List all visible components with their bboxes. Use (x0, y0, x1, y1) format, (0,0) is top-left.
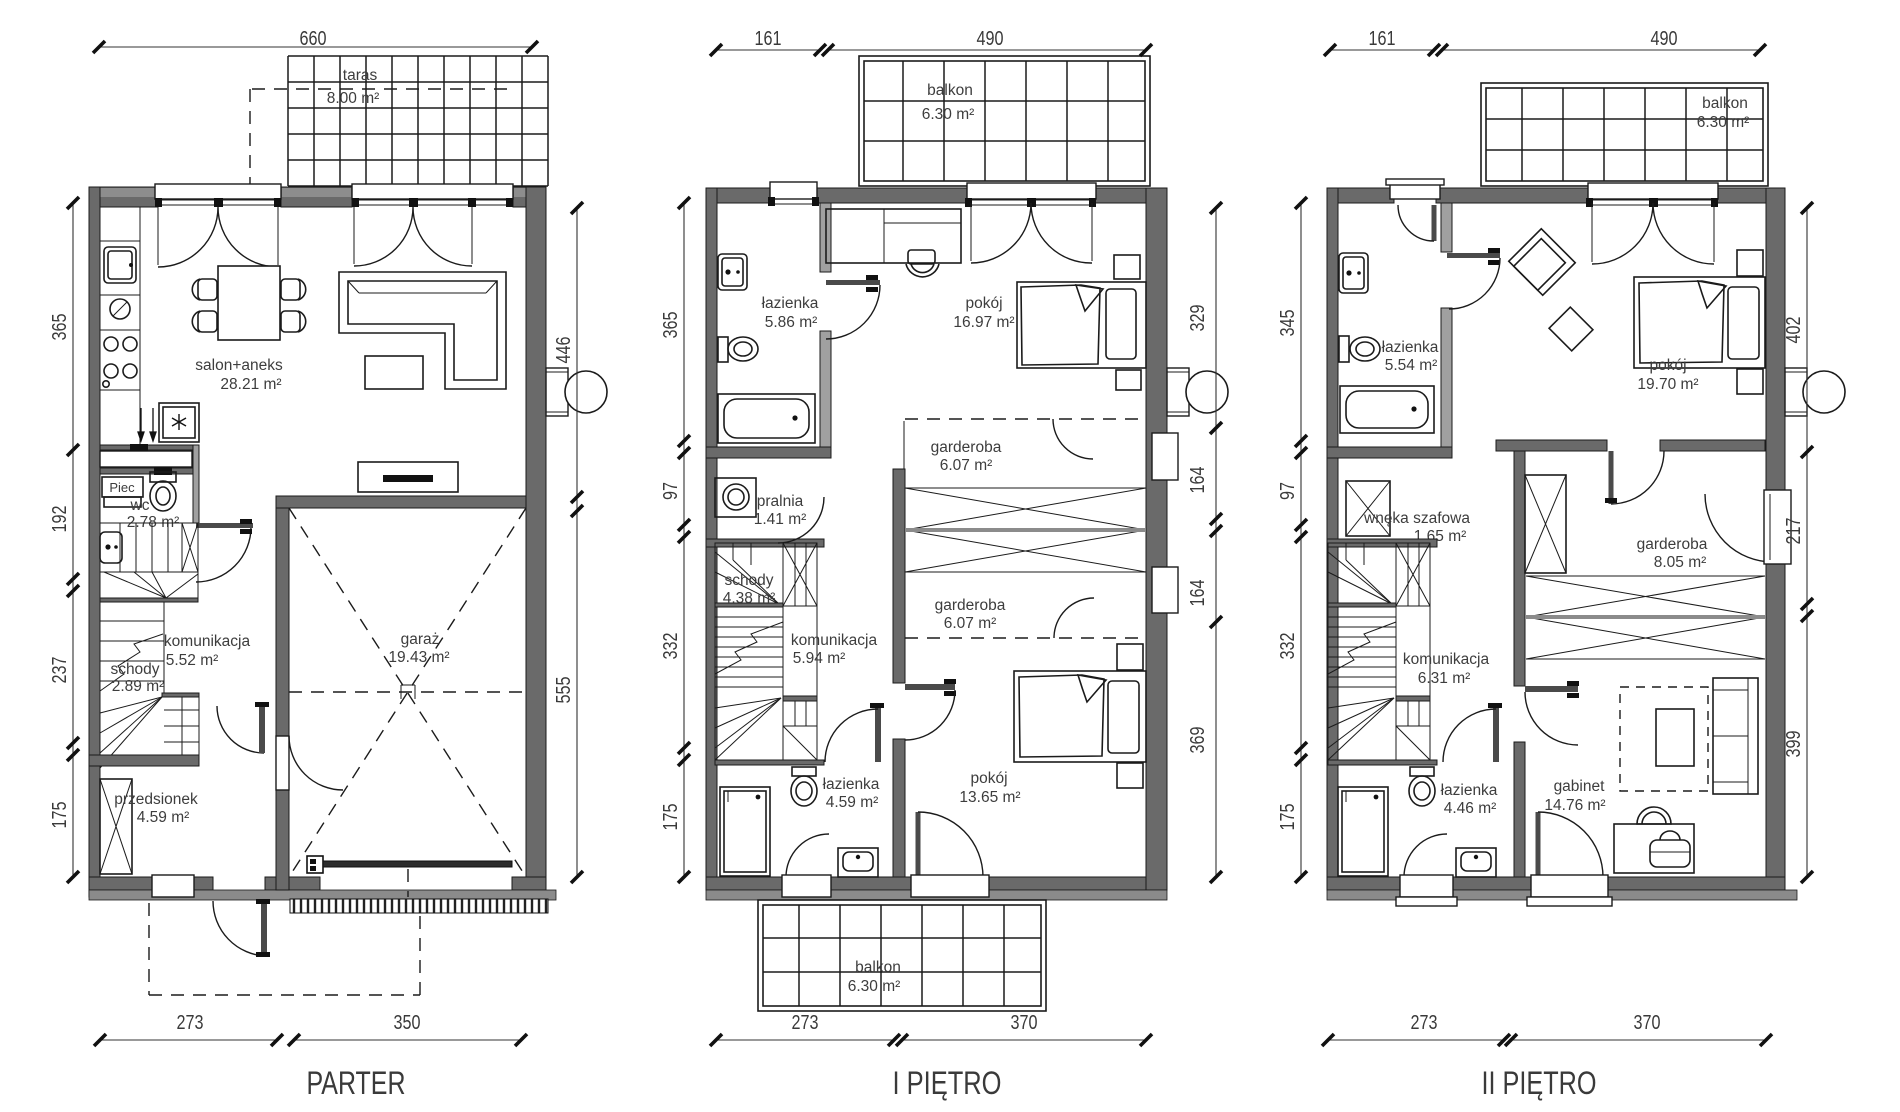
svg-text:161: 161 (755, 28, 782, 50)
svg-text:balkon: balkon (1702, 95, 1748, 112)
svg-text:14.76 m²: 14.76 m² (1544, 797, 1605, 814)
svg-text:217: 217 (1783, 518, 1805, 545)
svg-text:370: 370 (1011, 1012, 1038, 1034)
svg-text:łazienka: łazienka (1382, 339, 1439, 356)
svg-text:garaż: garaż (401, 631, 440, 648)
svg-text:garderoba: garderoba (1637, 536, 1708, 553)
svg-text:4.59 m²: 4.59 m² (826, 794, 879, 811)
svg-text:wc: wc (130, 497, 150, 514)
svg-text:399: 399 (1783, 731, 1805, 758)
svg-text:komunikacja: komunikacja (791, 632, 878, 649)
svg-text:365: 365 (49, 314, 71, 341)
svg-text:555: 555 (553, 677, 575, 704)
svg-text:13.65 m²: 13.65 m² (959, 789, 1020, 806)
svg-text:komunikacja: komunikacja (1403, 651, 1490, 668)
svg-text:przedsionek: przedsionek (114, 791, 198, 808)
svg-text:4.59 m²: 4.59 m² (137, 809, 190, 826)
svg-text:237: 237 (49, 657, 71, 684)
svg-text:345: 345 (1277, 310, 1299, 337)
svg-text:pralnia: pralnia (757, 493, 804, 510)
svg-text:8.05 m²: 8.05 m² (1654, 554, 1707, 571)
svg-text:8.00 m²: 8.00 m² (327, 90, 380, 107)
svg-text:97: 97 (660, 482, 682, 500)
svg-text:balkon: balkon (927, 82, 973, 99)
svg-text:19.43 m²: 19.43 m² (388, 649, 449, 666)
svg-text:Piec: Piec (109, 480, 135, 495)
svg-text:6.07 m²: 6.07 m² (944, 615, 997, 632)
svg-text:2.89 m²: 2.89 m² (112, 678, 165, 695)
svg-text:4.38 m²: 4.38 m² (723, 590, 776, 607)
svg-text:446: 446 (553, 337, 575, 364)
svg-text:175: 175 (1277, 804, 1299, 831)
svg-text:6.07 m²: 6.07 m² (940, 457, 993, 474)
svg-text:402: 402 (1783, 317, 1805, 344)
svg-text:161: 161 (1369, 28, 1396, 50)
svg-text:164: 164 (1187, 467, 1209, 494)
svg-text:balkon: balkon (855, 959, 901, 976)
svg-text:660: 660 (300, 28, 327, 50)
svg-text:192: 192 (49, 506, 71, 533)
svg-text:I PIĘTRO: I PIĘTRO (893, 1065, 1002, 1101)
svg-text:łazienka: łazienka (762, 295, 819, 312)
svg-text:332: 332 (660, 633, 682, 660)
svg-text:6.31 m²: 6.31 m² (1418, 670, 1471, 687)
svg-text:pokój: pokój (965, 295, 1002, 312)
svg-text:369: 369 (1187, 727, 1209, 754)
svg-text:gabinet: gabinet (1554, 778, 1606, 795)
svg-text:273: 273 (177, 1012, 204, 1034)
svg-text:taras: taras (343, 67, 378, 84)
svg-text:łazienka: łazienka (1441, 782, 1498, 799)
svg-text:5.54 m²: 5.54 m² (1385, 357, 1438, 374)
svg-text:6.30 m²: 6.30 m² (1697, 114, 1750, 131)
svg-text:schody: schody (110, 661, 159, 678)
svg-text:332: 332 (1277, 633, 1299, 660)
svg-text:łazienka: łazienka (823, 776, 880, 793)
svg-text:5.86 m²: 5.86 m² (765, 314, 818, 331)
svg-text:16.97 m²: 16.97 m² (953, 314, 1014, 331)
svg-text:175: 175 (660, 804, 682, 831)
svg-text:6.30 m²: 6.30 m² (922, 106, 975, 123)
svg-text:pokój: pokój (1649, 357, 1686, 374)
svg-text:II PIĘTRO: II PIĘTRO (1482, 1065, 1597, 1101)
svg-text:273: 273 (1411, 1012, 1438, 1034)
svg-text:164: 164 (1187, 580, 1209, 607)
svg-text:5.94 m²: 5.94 m² (793, 650, 846, 667)
svg-text:97: 97 (1277, 482, 1299, 500)
svg-text:wnęka szafowa: wnęka szafowa (1363, 510, 1470, 527)
svg-text:5.52 m²: 5.52 m² (166, 652, 219, 669)
svg-text:28.21 m²: 28.21 m² (220, 376, 281, 393)
svg-text:273: 273 (792, 1012, 819, 1034)
svg-text:365: 365 (660, 312, 682, 339)
svg-text:6.30 m²: 6.30 m² (848, 978, 901, 995)
svg-text:329: 329 (1187, 305, 1209, 332)
svg-text:350: 350 (394, 1012, 421, 1034)
svg-text:pokój: pokój (970, 770, 1007, 787)
svg-text:1.41 m²: 1.41 m² (754, 511, 807, 528)
svg-text:schody: schody (724, 572, 773, 589)
svg-text:490: 490 (1651, 28, 1678, 50)
svg-text:komunikacja: komunikacja (164, 633, 251, 650)
svg-text:garderoba: garderoba (931, 439, 1002, 456)
svg-text:garderoba: garderoba (935, 597, 1006, 614)
svg-text:370: 370 (1634, 1012, 1661, 1034)
svg-text:490: 490 (977, 28, 1004, 50)
svg-text:175: 175 (49, 802, 71, 829)
svg-text:19.70 m²: 19.70 m² (1637, 376, 1698, 393)
svg-text:4.46 m²: 4.46 m² (1444, 800, 1497, 817)
svg-text:salon+aneks: salon+aneks (195, 357, 283, 374)
svg-text:PARTER: PARTER (307, 1065, 406, 1101)
